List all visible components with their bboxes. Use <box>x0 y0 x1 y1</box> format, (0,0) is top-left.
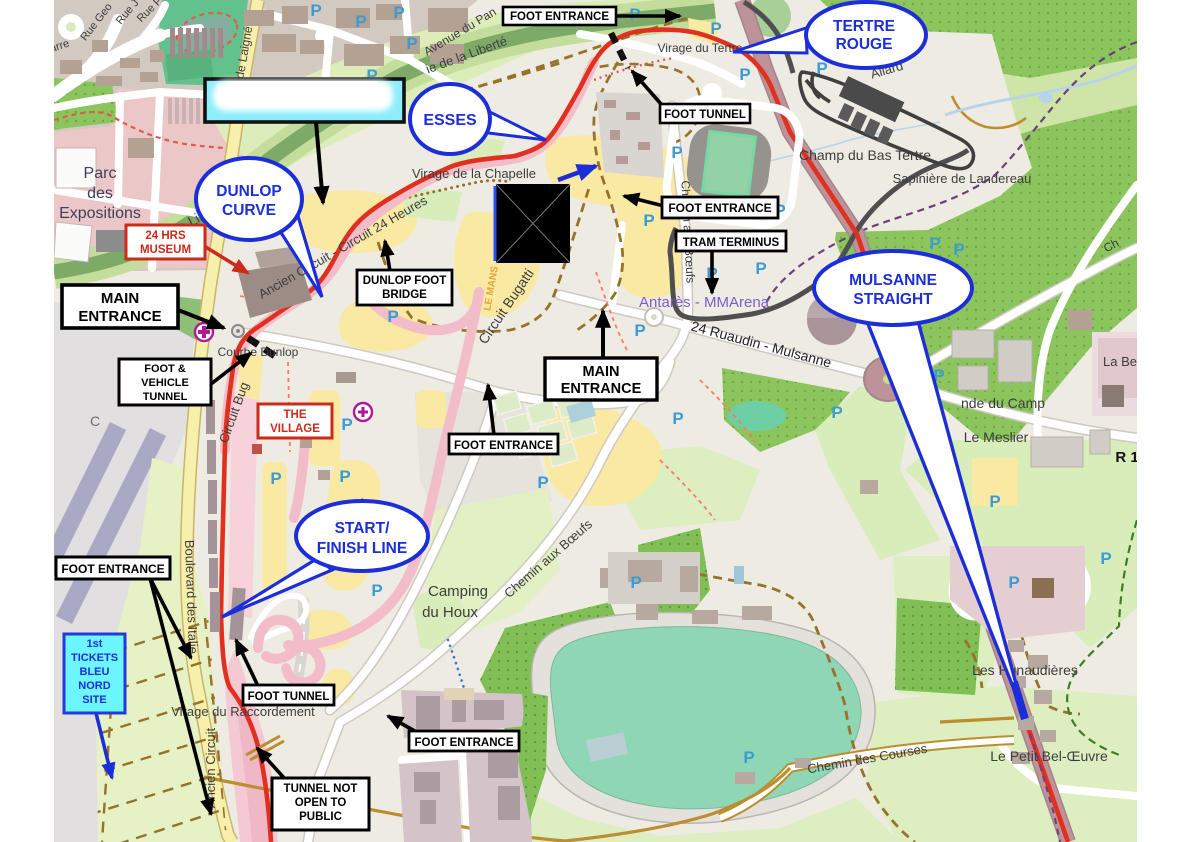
svg-text:Sapinière de Landereau: Sapinière de Landereau <box>893 171 1032 186</box>
svg-text:TERTRE: TERTRE <box>833 18 895 35</box>
svg-text:R 1: R 1 <box>1115 449 1138 466</box>
svg-text:Champ du Bas Tertre: Champ du Bas Tertre <box>799 147 931 163</box>
svg-text:P: P <box>755 259 766 278</box>
svg-text:ENTRANCE: ENTRANCE <box>78 308 161 325</box>
svg-text:PUBLIC: PUBLIC <box>299 811 342 823</box>
svg-text:Courbe Dunlop: Courbe Dunlop <box>218 345 299 359</box>
svg-text:P: P <box>634 321 645 340</box>
svg-text:FINISH LINE: FINISH LINE <box>317 540 407 557</box>
svg-text:FOOT ENTRANCE: FOOT ENTRANCE <box>61 562 164 576</box>
svg-text:P: P <box>1100 549 1111 568</box>
svg-text:Expositions: Expositions <box>59 205 141 222</box>
svg-text:P: P <box>406 34 417 53</box>
svg-text:Virage du Tertre: Virage du Tertre <box>658 41 743 55</box>
svg-text:Le Meslier: Le Meslier <box>964 429 1029 445</box>
svg-text:P: P <box>387 307 398 326</box>
svg-text:TICKETS: TICKETS <box>71 652 118 664</box>
svg-text:STRAIGHT: STRAIGHT <box>853 291 933 308</box>
svg-text:MULSANNE: MULSANNE <box>849 272 937 289</box>
svg-text:THE: THE <box>284 409 307 421</box>
svg-text:P: P <box>710 19 721 38</box>
svg-text:SITE: SITE <box>82 694 106 706</box>
svg-text:P: P <box>816 59 827 78</box>
svg-text:VEHICLE: VEHICLE <box>141 377 189 389</box>
svg-text:OPEN TO: OPEN TO <box>295 797 347 809</box>
svg-text:24 HRS: 24 HRS <box>145 230 186 242</box>
svg-text:P: P <box>672 409 683 428</box>
svg-text:FOOT ENTRANCE: FOOT ENTRANCE <box>510 11 609 23</box>
svg-text:P: P <box>630 573 641 592</box>
svg-text:P: P <box>371 581 382 600</box>
svg-text:C: C <box>90 413 100 429</box>
svg-text:P: P <box>537 473 548 492</box>
svg-text:BLEU: BLEU <box>80 666 110 678</box>
svg-text:VILLAGE: VILLAGE <box>270 423 320 435</box>
svg-text:ROUGE: ROUGE <box>836 36 893 53</box>
svg-text:P: P <box>929 234 940 253</box>
svg-text:Camping: Camping <box>428 583 488 600</box>
svg-text:Parc: Parc <box>84 165 117 182</box>
svg-text:La Be: La Be <box>1103 354 1137 369</box>
svg-text:TUNNEL: TUNNEL <box>143 391 188 403</box>
svg-text:Virage de la Chapelle: Virage de la Chapelle <box>412 166 536 181</box>
svg-text:P: P <box>739 65 750 84</box>
svg-text:du Houx: du Houx <box>422 604 478 621</box>
svg-text:P: P <box>339 467 350 486</box>
svg-text:P: P <box>989 492 1000 511</box>
svg-text:Les Hunaudières: Les Hunaudières <box>972 662 1078 678</box>
svg-text:nde du Camp: nde du Camp <box>961 395 1045 411</box>
svg-text:FOOT ENTRANCE: FOOT ENTRANCE <box>454 440 553 452</box>
svg-text:P: P <box>341 415 352 434</box>
svg-text:START/: START/ <box>335 520 391 537</box>
svg-text:MAIN: MAIN <box>582 364 619 380</box>
svg-text:P: P <box>831 403 842 422</box>
svg-text:ESSES: ESSES <box>423 112 477 129</box>
svg-text:FOOT ENTRANCE: FOOT ENTRANCE <box>414 737 513 749</box>
svg-text:Antarès - MMArena: Antarès - MMArena <box>639 294 770 311</box>
svg-text:MAIN: MAIN <box>101 290 139 307</box>
svg-text:MUSEUM: MUSEUM <box>140 244 191 256</box>
svg-text:DUNLOP FOOT: DUNLOP FOOT <box>363 275 446 287</box>
svg-text:FOOT TUNNEL: FOOT TUNNEL <box>664 109 746 121</box>
svg-text:TRAM TERMINUS: TRAM TERMINUS <box>683 237 780 249</box>
svg-text:des: des <box>87 185 113 202</box>
svg-text:DUNLOP: DUNLOP <box>216 183 281 200</box>
svg-text:FOOT ENTRANCE: FOOT ENTRANCE <box>668 201 771 215</box>
svg-text:P: P <box>355 12 366 31</box>
svg-text:TUNNEL NOT: TUNNEL NOT <box>284 783 358 795</box>
svg-text:ENTRANCE: ENTRANCE <box>561 381 642 397</box>
svg-text:FOOT &: FOOT & <box>144 363 186 375</box>
svg-text:P: P <box>310 1 321 20</box>
svg-text:NORD: NORD <box>78 680 110 692</box>
svg-text:Le Petit Bel-Œuvre: Le Petit Bel-Œuvre <box>990 748 1108 764</box>
svg-text:P: P <box>671 143 682 162</box>
svg-text:P: P <box>393 3 404 22</box>
svg-text:P: P <box>953 240 964 259</box>
svg-text:P: P <box>1008 573 1019 592</box>
svg-text:BRIDGE: BRIDGE <box>382 289 427 301</box>
svg-text:P: P <box>643 211 654 230</box>
svg-text:P: P <box>743 748 754 767</box>
svg-text:FOOT TUNNEL: FOOT TUNNEL <box>248 691 330 703</box>
svg-text:CURVE: CURVE <box>222 202 276 219</box>
svg-text:1st: 1st <box>87 638 103 650</box>
svg-text:P: P <box>270 469 281 488</box>
